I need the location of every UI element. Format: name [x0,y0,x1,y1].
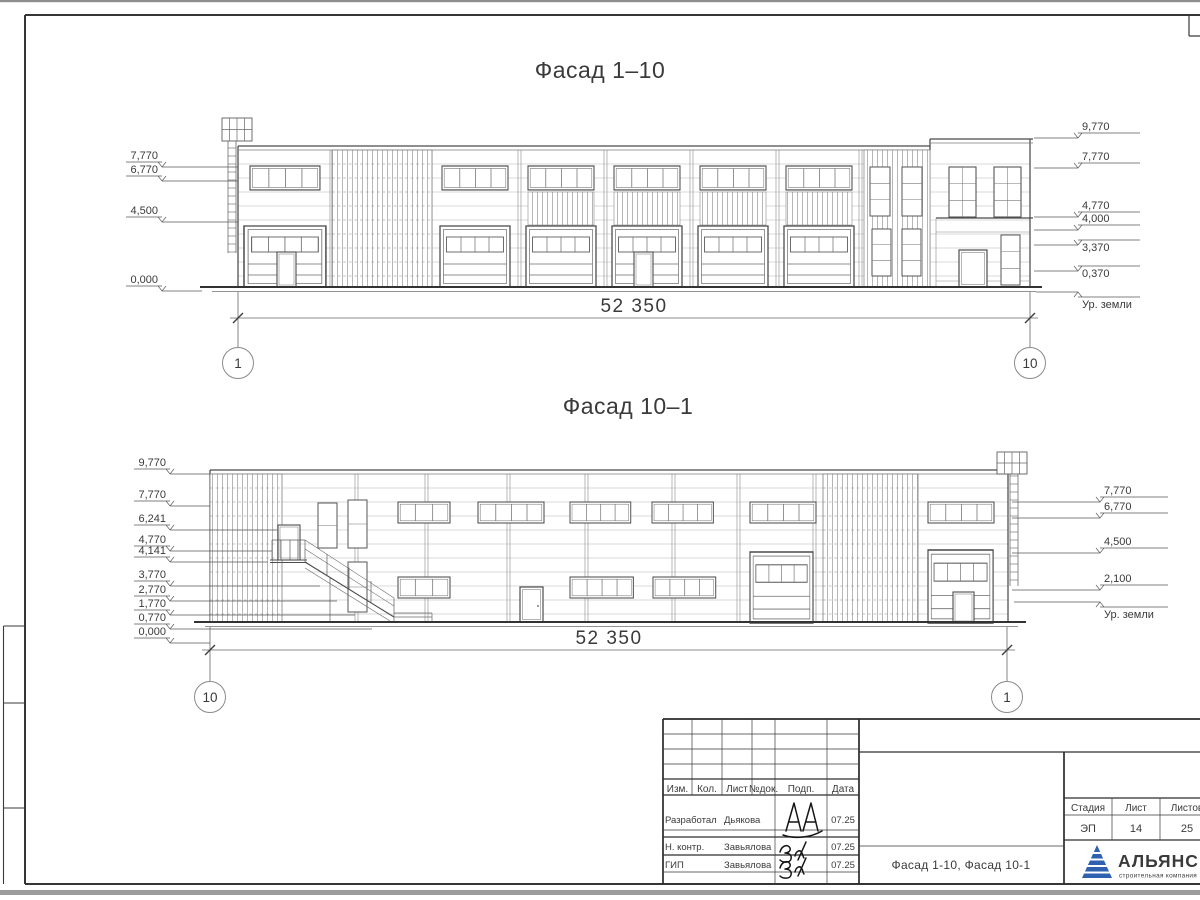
louver-section [823,474,918,622]
roof-ladder [997,452,1027,586]
role-razrabotal: Разработал [665,815,717,826]
signature-n-kontr [780,842,806,862]
elevation-label: 0,370 [1082,268,1110,280]
title-block-medium-lines [663,752,1200,855]
drawing-frame-border [25,15,1200,884]
axis-label: 1 [1003,690,1011,705]
date-2: 07.25 [831,842,855,853]
personnel-door [634,252,653,287]
strip-window [653,577,716,598]
strip-window [478,502,544,523]
gate [440,226,510,287]
drawing-sheet: Фасад 1–10 [0,0,1200,900]
strip-window [570,577,633,598]
sheet-value: 14 [1130,823,1142,835]
elevation-label: 9,770 [138,457,166,469]
end-section [936,167,1033,287]
strip-window [398,577,450,598]
elevation-label: 0,000 [138,626,166,638]
ground-level-label: Ур. земли [1104,609,1154,621]
logo-name: АЛЬЯНС [1118,851,1199,871]
logo-tagline: строительная компания [1119,873,1197,880]
facade-1-10-title: Фасад 1–10 [535,57,666,83]
elevation-marks-right: 9,770 7,770 4,770 4,000 3,370 0,370 Ур. … [1034,121,1140,311]
personnel-door [520,587,543,622]
strip-window [528,166,594,190]
strip-window [700,166,766,190]
document-title: Фасад 1-10, Фасад 10-1 [892,858,1031,872]
col-header-data: Дата [832,784,855,795]
sheets-value: 25 [1181,823,1193,835]
louver-section [332,150,432,287]
gate [750,552,813,623]
elevation-label: 4,500 [130,205,158,217]
left-margin-boxes [4,626,26,884]
axis-label: 1 [234,356,242,371]
strip-window [398,502,450,523]
drawing-canvas: Фасад 1–10 [0,0,1200,900]
axis-label: 10 [1022,356,1037,371]
facade-10-1-title: Фасад 10–1 [563,393,694,419]
personnel-door [277,252,296,287]
col-header-list: Лист [726,784,748,795]
elevation-marks-right: 7,770 6,770 4,500 2,100 Ур. земли [1012,485,1168,621]
strip-window [614,166,680,190]
facade-1-10-dimension: 52 350 1 10 [223,292,1046,379]
elevation-label: 0,770 [138,612,166,624]
overall-dimension: 52 350 [600,296,667,317]
elevation-label: 7,770 [1104,485,1132,497]
ground-level-label: Ур. земли [1082,299,1132,311]
strip-window [250,166,320,190]
axis-label: 10 [202,690,217,705]
elevation-label: 2,770 [138,584,166,596]
name-zavyalova-1: Завьялова [724,842,772,853]
gate [784,226,854,287]
elevation-label: 6,770 [1104,501,1132,513]
elevation-label: 9,770 [1082,121,1110,133]
strip-window [928,502,994,523]
elevation-label: 4,500 [1104,536,1132,548]
elevation-label: 1,770 [138,598,166,610]
elevation-label: 6,241 [138,513,166,525]
overall-dimension: 52 350 [575,628,642,649]
facade-1-10-drawing [200,118,1042,292]
date-1: 07.25 [831,815,855,826]
elevation-label: 3,370 [1082,242,1110,254]
sheet-label: Лист [1125,803,1147,814]
gate [526,226,596,287]
elevation-label: 2,100 [1104,573,1132,585]
elevation-label: 4,141 [138,545,166,557]
signature-razrabotal [783,803,822,837]
col-header-izm: Изм. [667,784,688,795]
strip-window [750,502,816,523]
corner-stamp-box [1189,15,1200,36]
title-block: Изм. Кол. Лист №док. Подп. Дата Разработ… [663,719,1200,884]
louver-section [210,474,282,622]
role-n-kontr: Н. контр. [665,842,704,853]
elevation-label: 6,770 [130,164,158,176]
elevation-label: 7,770 [130,150,158,162]
stage-label: Стадия [1071,803,1105,814]
gate [698,226,768,287]
elevation-label: 7,770 [1082,151,1110,163]
elevation-label: 7,770 [138,489,166,501]
facade-10-1-dimension: 52 350 10 1 [195,627,1023,713]
facade-10-1-view: Фасад 10–1 [134,393,1168,713]
personnel-door [953,592,974,623]
elevation-label: 3,770 [138,569,166,581]
strip-window [652,502,713,523]
elevation-marks-left: 7,770 6,770 4,500 0,000 [126,150,238,291]
stage-value: ЭП [1080,823,1096,835]
col-header-ndok: №док. [749,784,778,795]
page-top-edge [0,0,1200,2]
strip-window [786,166,852,190]
strip-window [570,502,631,523]
date-3: 07.25 [831,860,855,871]
elevation-label: 0,000 [130,274,158,286]
facade-1-10-view: Фасад 1–10 [126,57,1140,379]
sheet-frame [0,0,1200,895]
facade-10-1-drawing [194,452,1027,627]
signature-gip [780,858,806,878]
name-dyakova: Дьякова [724,815,761,826]
elevation-label: 4,770 [1082,200,1110,212]
col-header-podp: Подп. [788,784,815,795]
right-slat-strip [864,150,930,287]
col-header-kol: Кол. [697,784,717,795]
strip-window [442,166,508,190]
elevation-label: 4,000 [1082,213,1110,225]
role-gip: ГИП [665,860,684,871]
name-zavyalova-2: Завьялова [724,860,772,871]
company-logo: АЛЬЯНС строительная компания [1082,845,1199,880]
sheets-label: Листов [1171,803,1200,814]
page-bottom-edge [0,890,1200,895]
